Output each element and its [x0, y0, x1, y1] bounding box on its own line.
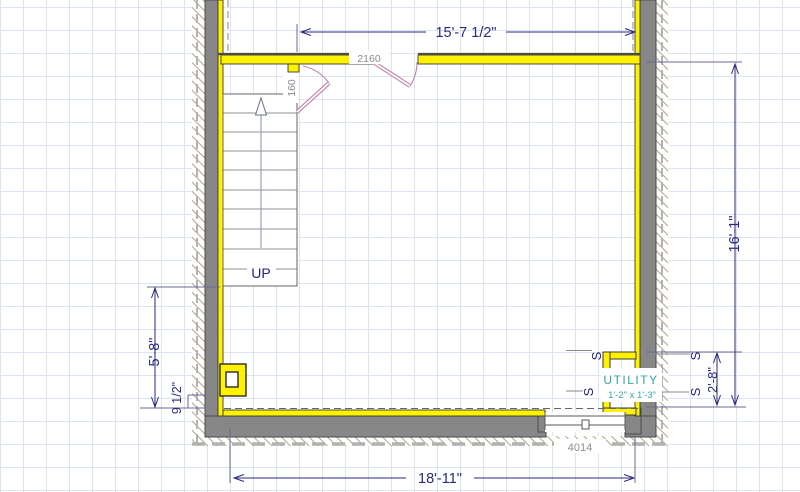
wall-top-interior-right-segment[interactable] [418, 55, 640, 64]
doors[interactable] [297, 62, 417, 112]
floorplan-drawing: 15'-7 1/2" 16'-1" 2'-8" 5'-8" 9 1/2" 18'… [0, 0, 800, 492]
dimension-text-left[interactable]: 5'-8" [147, 338, 163, 367]
door-swing-arc-stair [303, 66, 329, 83]
stairs[interactable] [223, 94, 297, 286]
window-4014[interactable] [545, 412, 625, 432]
door-leaf-2160-fill [373, 62, 410, 86]
label-backgrounds [283, 51, 662, 453]
door-swing-arc-2160 [410, 62, 417, 86]
stairs-up-label: UP [251, 265, 270, 281]
dimension-text-bottom[interactable]: 18'-11" [418, 471, 462, 487]
switch-symbol[interactable]: S [581, 387, 596, 396]
window-label-4014[interactable]: 4014 [568, 442, 592, 454]
door-label-160[interactable]: 160 [286, 79, 298, 97]
switch-symbol[interactable]: S [688, 387, 703, 396]
window-node[interactable] [582, 420, 589, 429]
utility-room-label[interactable]: UTILITY [603, 373, 658, 387]
fixture-flue[interactable] [220, 364, 246, 396]
utility-size-label[interactable]: 1'-2" x 1'-3" [608, 390, 656, 401]
dimension-text-right-inner[interactable]: 2'-8" [705, 367, 720, 393]
wall-left[interactable] [205, 0, 218, 437]
dimension-text-top[interactable]: 15'-7 1/2" [435, 25, 496, 41]
wall-face-bottom[interactable] [223, 410, 545, 416]
switch-symbol[interactable]: S [589, 351, 604, 360]
door-leaf-stair-fill [297, 83, 329, 112]
door-jamb-stub[interactable] [288, 64, 299, 72]
door-label-2160[interactable]: 2160 [357, 53, 381, 65]
dimension-text-right[interactable]: 16'-1" [727, 216, 743, 253]
fixture-inner [226, 372, 238, 387]
floorplan-canvas: 15'-7 1/2" 16'-1" 2'-8" 5'-8" 9 1/2" 18'… [0, 0, 800, 492]
dimension-text-left-inner[interactable]: 9 1/2" [170, 382, 184, 414]
wall-bottom-left-run[interactable] [205, 416, 546, 437]
switch-symbol[interactable]: S [688, 351, 703, 360]
hatch-left-wall [192, 0, 206, 446]
